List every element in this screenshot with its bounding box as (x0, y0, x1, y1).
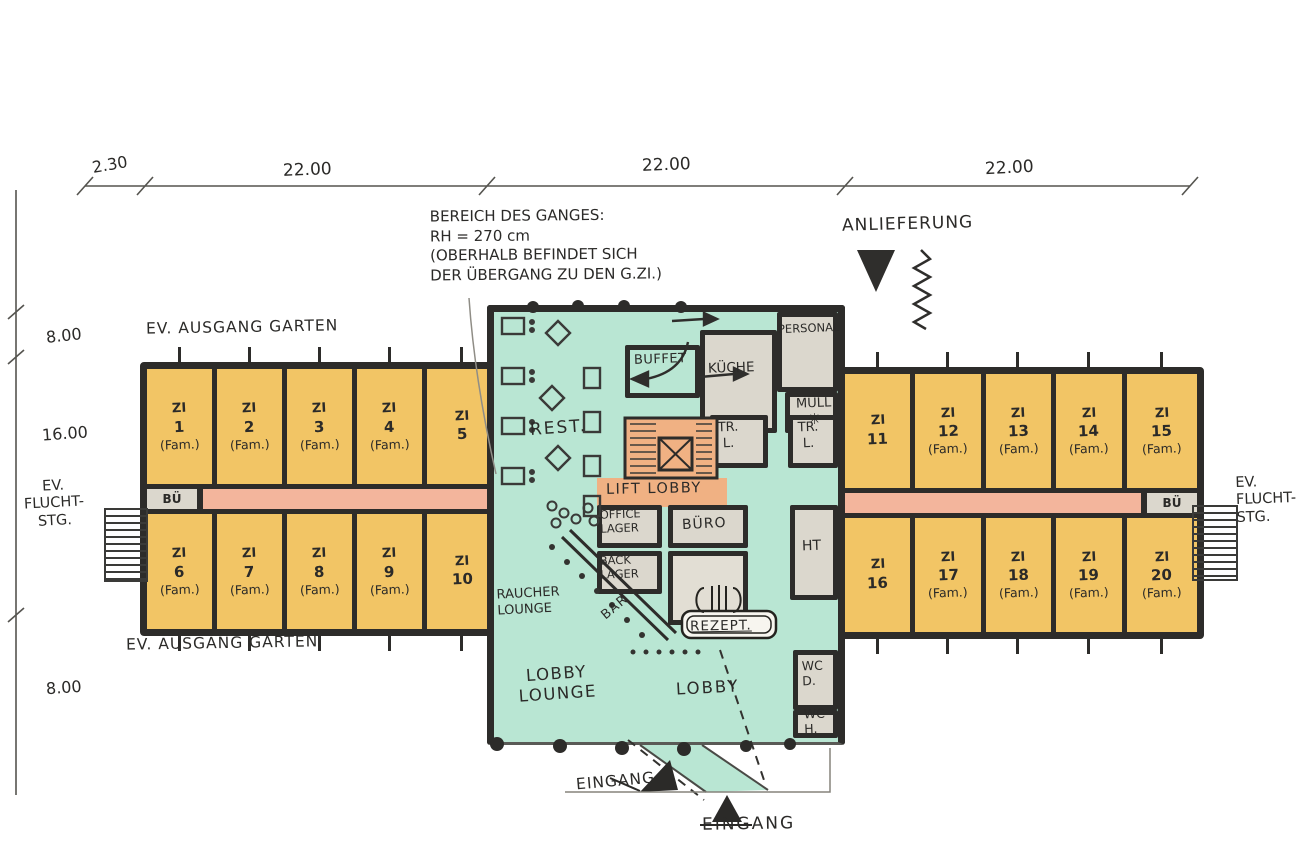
sketch-linework (0, 0, 1300, 866)
bar-counter-icon (549, 530, 701, 655)
entrance-main-arrow-icon (700, 795, 752, 825)
lounge-furniture-icons (548, 502, 599, 528)
column-dots (490, 300, 796, 756)
entrance-west-arrow-icon (610, 760, 678, 792)
floor-plan-sketch: ZI 1 (Fam.) ZI 2 (Fam.) ZI 3 (Fam.) ZI 4… (0, 0, 1300, 866)
core-stair-lift-icon (625, 418, 717, 478)
note-leader-line (469, 298, 496, 474)
buffet-flow-arrows (632, 313, 747, 386)
restaurant-tables-icons (502, 318, 600, 516)
reception-desk-icon (682, 611, 776, 638)
delivery-arrow-icon (857, 250, 895, 292)
door-gate-icon (696, 585, 740, 612)
delivery-zigzag-icon (914, 250, 930, 329)
left-dimension-line (8, 190, 24, 795)
top-dimension-line (77, 177, 1198, 195)
